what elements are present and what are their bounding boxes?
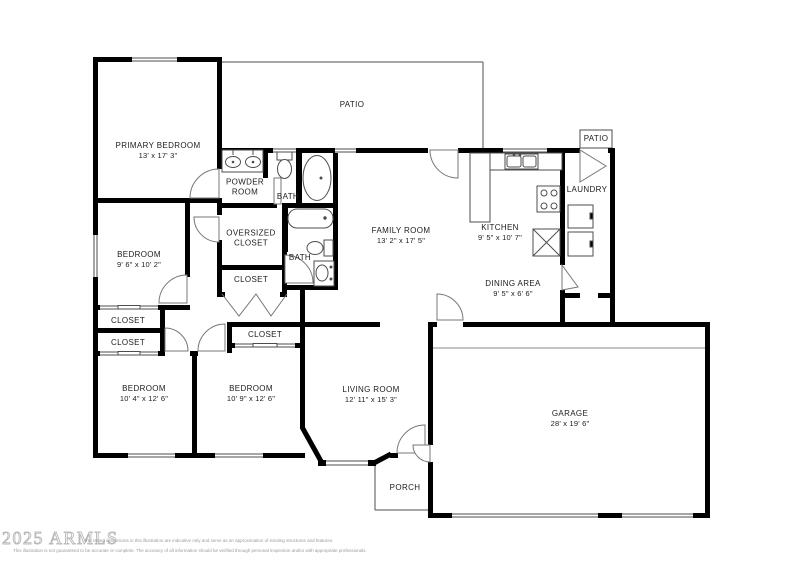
door-arc-garage-porch (413, 445, 430, 462)
bathtub (288, 209, 333, 228)
toilet (277, 152, 292, 179)
disclaimer-line2: This illustration is not guaranteed to b… (13, 548, 367, 553)
double-vanity-sink (222, 150, 263, 172)
door-arc-family-patio (430, 150, 458, 178)
bathtub-oval (303, 156, 331, 201)
stove (537, 186, 560, 212)
bay-window-walls (302, 427, 391, 463)
porch-outline (375, 466, 430, 510)
disclaimer-line1: the stated dimensions in this illustrati… (85, 538, 333, 543)
door-leaf-laundry-patio (580, 150, 606, 182)
door-arc-hall-bath (285, 255, 313, 283)
door-leaf-kitchen-laundry (562, 265, 578, 290)
bifold-closet-doors (222, 294, 287, 316)
door-arc-bedroom-bottom-mid (198, 324, 225, 351)
door-leaf-powder-room (274, 178, 281, 204)
patio-right-outline (580, 130, 612, 148)
door-arc-garage-entry (437, 294, 463, 320)
garage-door-lines (452, 514, 693, 517)
kitchen-sink (505, 154, 538, 169)
sink (314, 261, 334, 286)
door-arc-bedroom-bottom-left (165, 328, 188, 351)
dryer (568, 232, 593, 256)
dishwasher (533, 229, 560, 256)
floor-plan-drawing (0, 0, 800, 566)
toilet (307, 240, 333, 256)
door-arc-bedroom-left (159, 275, 187, 303)
door-arc-oversized-closet (194, 217, 219, 242)
floor-plan-page: PRIMARY BEDROOM13' x 17' 3"PATIOPOWDER R… (0, 0, 800, 566)
patio-outline (222, 62, 483, 148)
washer (568, 205, 593, 228)
door-arc-primary-bedroom (190, 169, 219, 198)
